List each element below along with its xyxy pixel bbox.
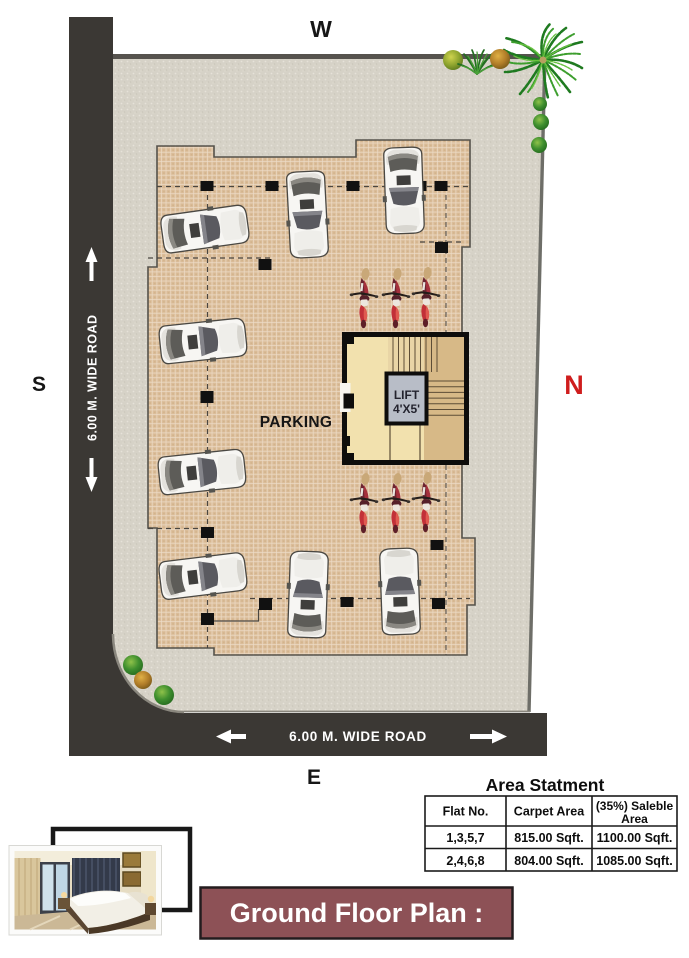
svg-text:Area Statment: Area Statment [486, 775, 605, 795]
svg-text:1100.00 Sqft.: 1100.00 Sqft. [597, 831, 673, 845]
svg-text:1,3,5,7: 1,3,5,7 [446, 831, 484, 845]
svg-text:LIFT: LIFT [394, 388, 420, 402]
svg-text:E: E [307, 766, 321, 789]
svg-text:804.00 Sqft.: 804.00 Sqft. [514, 854, 583, 868]
svg-text:S: S [32, 373, 46, 396]
svg-text:4'X5': 4'X5' [393, 402, 420, 416]
svg-text:815.00 Sqft.: 815.00 Sqft. [514, 831, 583, 845]
svg-text:Carpet Area: Carpet Area [514, 805, 585, 819]
svg-text:6.00 M. WIDE ROAD: 6.00 M. WIDE ROAD [86, 314, 100, 441]
svg-text:6.00 M. WIDE ROAD: 6.00 M. WIDE ROAD [289, 729, 427, 744]
svg-text:1085.00 Sqft.: 1085.00 Sqft. [596, 854, 672, 868]
svg-text:Flat No.: Flat No. [443, 805, 489, 819]
svg-text:2,4,6,8: 2,4,6,8 [446, 854, 484, 868]
svg-text:(35%) Saleble: (35%) Saleble [596, 799, 674, 813]
svg-text:N: N [564, 370, 584, 400]
svg-text:W: W [310, 16, 332, 42]
svg-text:Ground Floor Plan :: Ground Floor Plan : [230, 898, 483, 928]
svg-text:PARKING: PARKING [260, 414, 332, 431]
svg-text:Area: Area [621, 812, 648, 826]
